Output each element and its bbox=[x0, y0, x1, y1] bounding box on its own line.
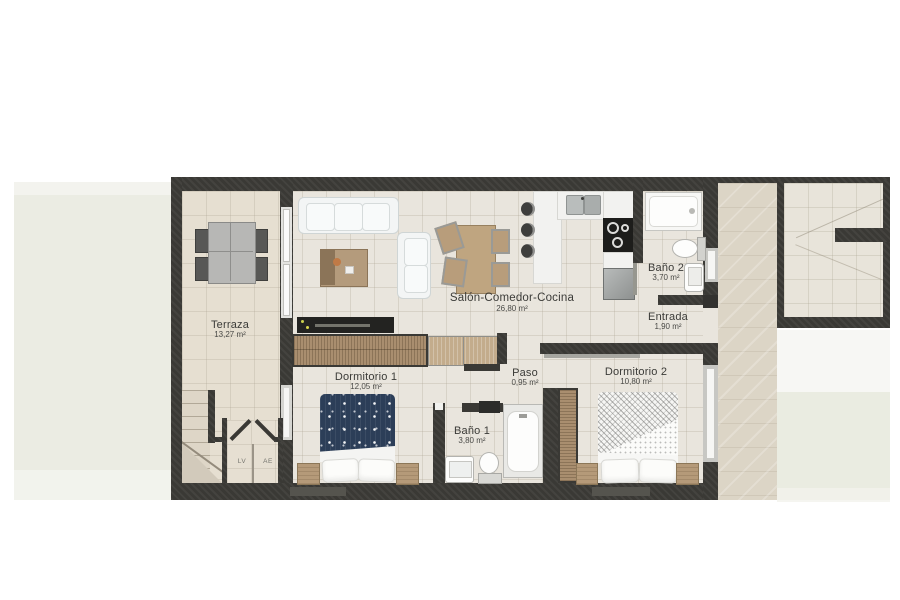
label-bano1: Baño 1 3,80 m² bbox=[454, 425, 490, 446]
bano1-bathtub-inner bbox=[507, 411, 539, 472]
label-bano2-area: 3,70 m² bbox=[648, 274, 684, 283]
sofa-cushion-1 bbox=[306, 203, 335, 231]
bed2-pillow-2 bbox=[639, 458, 678, 483]
closet-label-lv: LV bbox=[238, 458, 246, 465]
garden-left-edge-bottom bbox=[14, 470, 172, 500]
wall-closet-right bbox=[278, 418, 283, 483]
bar-stool-3 bbox=[521, 244, 535, 258]
label-bano1-area: 3,80 m² bbox=[454, 437, 490, 446]
bano2-shower-drain bbox=[689, 208, 695, 214]
wall-kitchen-bano2 bbox=[633, 177, 643, 263]
bed1-pillow-1 bbox=[321, 458, 359, 483]
window-bano2-glass bbox=[708, 251, 715, 279]
label-dormitorio1-area: 12,05 m² bbox=[335, 383, 397, 392]
coffee-table-deco-book bbox=[345, 266, 354, 274]
corridor-floor bbox=[718, 183, 777, 500]
window-dormitorio2-glass bbox=[707, 369, 714, 458]
wall-right-mid bbox=[703, 343, 718, 365]
neighbor-wall-right bbox=[883, 180, 890, 328]
garden-right-patio bbox=[777, 330, 890, 392]
bano1-bathtub-faucet bbox=[519, 414, 527, 418]
wall-bano1-dormitorio2 bbox=[543, 388, 558, 483]
label-entrada-area: 1,90 m² bbox=[648, 323, 688, 332]
wall-paso-stub bbox=[497, 333, 507, 364]
tv-soundbar bbox=[315, 324, 370, 327]
label-terraza: Terraza 13,27 m² bbox=[211, 319, 249, 340]
wardrobe-dormitorio1-shelf-line bbox=[294, 349, 426, 350]
label-salon: Salón-Comedor-Cocina 26,80 m² bbox=[450, 292, 574, 314]
kitchen-appliance bbox=[603, 268, 635, 300]
cooktop-burner-1 bbox=[607, 222, 619, 234]
neighbor-stair-floor bbox=[784, 183, 883, 317]
kitchen-faucet bbox=[581, 197, 584, 200]
coffee-table-dark-panel bbox=[320, 249, 335, 285]
bano1-sink-basin bbox=[449, 461, 472, 478]
wall-left bbox=[171, 177, 182, 500]
label-dormitorio1: Dormitorio 1 12,05 m² bbox=[335, 371, 397, 392]
label-salon-area: 26,80 m² bbox=[450, 305, 574, 314]
loveseat-cushion-2 bbox=[404, 265, 428, 293]
label-salon-name: Salón-Comedor-Cocina bbox=[450, 292, 574, 305]
terraza-glass-pane-1 bbox=[283, 209, 290, 262]
bed1-duvet bbox=[320, 394, 395, 454]
terrace-table-cross-v bbox=[230, 223, 231, 281]
tv-console-led-2 bbox=[306, 326, 309, 329]
wall-bano1-left bbox=[433, 403, 445, 483]
nightstand-d2-left bbox=[576, 463, 598, 485]
bano2-door bbox=[633, 263, 637, 295]
wall-closet-left bbox=[222, 418, 227, 483]
loveseat-cushion-1 bbox=[404, 238, 428, 266]
tv-console-led-1 bbox=[301, 320, 304, 323]
sofa-cushion-2 bbox=[334, 203, 363, 231]
label-entrada: Entrada 1,90 m² bbox=[648, 311, 688, 332]
label-bano2: Baño 2 3,70 m² bbox=[648, 262, 684, 283]
bano2-sink-basin bbox=[688, 267, 702, 286]
label-paso-area: 0,95 m² bbox=[511, 379, 538, 388]
window-dormitorio1-glass bbox=[284, 388, 289, 437]
wall-bottom-window-2 bbox=[592, 487, 650, 496]
neighbor-wall-bottom bbox=[777, 317, 890, 328]
bano1-toilet-cistern bbox=[478, 473, 502, 484]
kitchen-sink-bowl-2 bbox=[584, 195, 601, 215]
wardrobe-dormitorio1 bbox=[292, 334, 428, 367]
terraza-glass-pane-2 bbox=[283, 264, 290, 316]
wall-stairs-stub bbox=[208, 390, 215, 443]
dining-chair-2 bbox=[441, 257, 468, 288]
wardrobe-dormitorio2 bbox=[558, 388, 578, 483]
entry-door bbox=[703, 295, 718, 308]
bano1-toilet-bowl bbox=[479, 452, 499, 474]
bar-stool-2 bbox=[521, 223, 535, 237]
nightstand-d2-right bbox=[676, 463, 699, 485]
sofa-cushion-3 bbox=[362, 203, 390, 231]
wall-right-lower bbox=[703, 462, 718, 500]
label-dormitorio2: Dormitorio 2 10,80 m² bbox=[605, 366, 667, 387]
nightstand-d1-right bbox=[396, 463, 419, 485]
bano2-toilet-bowl bbox=[672, 239, 698, 258]
wardrobe-hall-divider bbox=[463, 337, 464, 365]
paso-door bbox=[464, 364, 500, 371]
neighbor-wall-left bbox=[777, 180, 784, 328]
terrace-table-cross-h bbox=[209, 251, 253, 252]
wall-bano2-bottom bbox=[658, 295, 703, 305]
bed2-pillow-1 bbox=[601, 458, 640, 483]
bano1-shower-column bbox=[479, 401, 500, 413]
bano1-door-jamb bbox=[435, 403, 443, 410]
terrace-table bbox=[208, 222, 256, 284]
bar-stool-1 bbox=[521, 202, 535, 216]
neighbor-wall-stub bbox=[835, 228, 890, 242]
cooktop-burner-2 bbox=[621, 224, 629, 232]
label-paso: Paso 0,95 m² bbox=[511, 367, 538, 388]
closet-label-ae: AE bbox=[263, 458, 273, 465]
kitchen-counter-right bbox=[603, 191, 635, 220]
wall-closet-stub-left bbox=[214, 437, 224, 442]
label-terraza-area: 13,27 m² bbox=[211, 331, 249, 340]
wall-bottom-window-1 bbox=[290, 487, 346, 496]
garden-left bbox=[14, 182, 172, 500]
closet-divider bbox=[252, 444, 254, 483]
bed1-pillow-2 bbox=[358, 458, 396, 482]
coffee-table-deco-bowl bbox=[333, 258, 341, 266]
nightstand-d1-left bbox=[297, 463, 320, 485]
garden-right bbox=[777, 392, 890, 500]
garden-left-edge-top bbox=[14, 182, 172, 195]
dining-chair-4 bbox=[491, 262, 510, 287]
wardrobe-hall bbox=[428, 336, 500, 366]
dining-chair-3 bbox=[491, 229, 510, 254]
wall-entrada-bedrooms bbox=[540, 343, 703, 354]
floor-plan: LV AE Terraza 1 bbox=[0, 0, 900, 600]
garden-right-edge-bottom bbox=[777, 488, 890, 502]
cooktop-burner-3 bbox=[612, 237, 623, 248]
wall-top-right bbox=[718, 177, 890, 183]
bano2-toilet-cistern bbox=[697, 237, 706, 261]
label-dormitorio2-area: 10,80 m² bbox=[605, 378, 667, 387]
dormitorio2-sliding-door bbox=[544, 354, 640, 358]
